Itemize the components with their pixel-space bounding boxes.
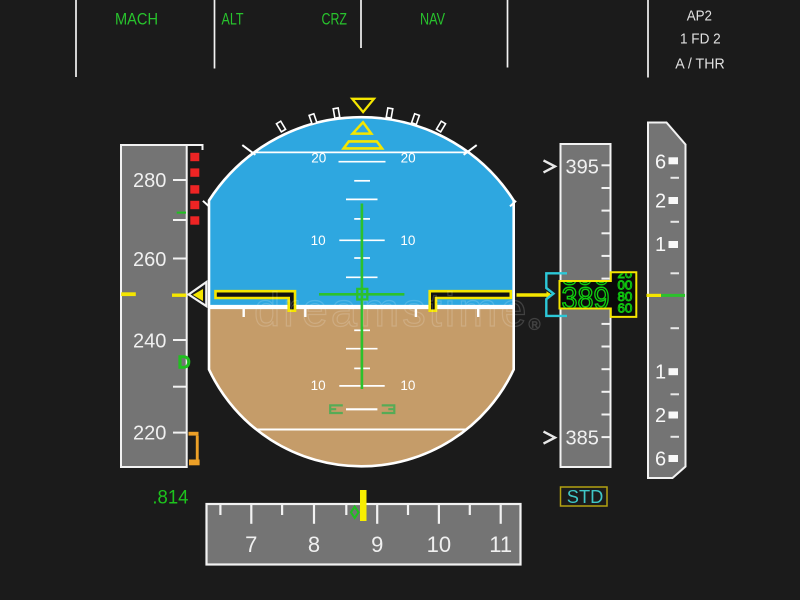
svg-text:8: 8 [308, 532, 320, 557]
svg-text:1: 1 [655, 234, 666, 256]
svg-text:1 FD 2: 1 FD 2 [680, 31, 721, 48]
svg-text:dreamstime: dreamstime [254, 283, 530, 336]
svg-text:60: 60 [618, 300, 633, 315]
svg-text:ALT: ALT [222, 10, 244, 29]
svg-text:7: 7 [245, 532, 257, 557]
svg-text:6: 6 [655, 152, 666, 174]
svg-text:220: 220 [133, 423, 166, 445]
svg-text:CRZ: CRZ [322, 10, 348, 29]
svg-text:260: 260 [133, 249, 166, 271]
svg-text:NAV: NAV [420, 10, 445, 29]
svg-text:R: R [532, 320, 538, 330]
svg-text:20: 20 [311, 151, 326, 166]
svg-text:MACH: MACH [115, 10, 158, 29]
svg-text:.814: .814 [152, 488, 188, 509]
svg-text:395: 395 [566, 156, 599, 178]
svg-text:10: 10 [311, 233, 326, 248]
svg-text:240: 240 [133, 331, 166, 353]
svg-text:AP2: AP2 [687, 7, 712, 24]
svg-text:2: 2 [655, 191, 666, 213]
svg-text:1: 1 [655, 362, 666, 384]
svg-text:2: 2 [655, 405, 666, 427]
svg-text:20: 20 [401, 151, 416, 166]
svg-text:A / THR: A / THR [675, 55, 725, 72]
svg-text:9: 9 [371, 532, 383, 557]
svg-text:11: 11 [489, 532, 512, 557]
svg-text:10: 10 [400, 233, 415, 248]
svg-text:6: 6 [655, 449, 666, 471]
svg-text:385: 385 [566, 427, 599, 449]
svg-text:STD: STD [567, 486, 604, 507]
svg-text:10: 10 [427, 532, 451, 557]
svg-text:280: 280 [133, 170, 166, 192]
svg-text:10: 10 [400, 378, 415, 393]
svg-text:10: 10 [311, 378, 326, 393]
svg-text:D: D [178, 352, 191, 372]
